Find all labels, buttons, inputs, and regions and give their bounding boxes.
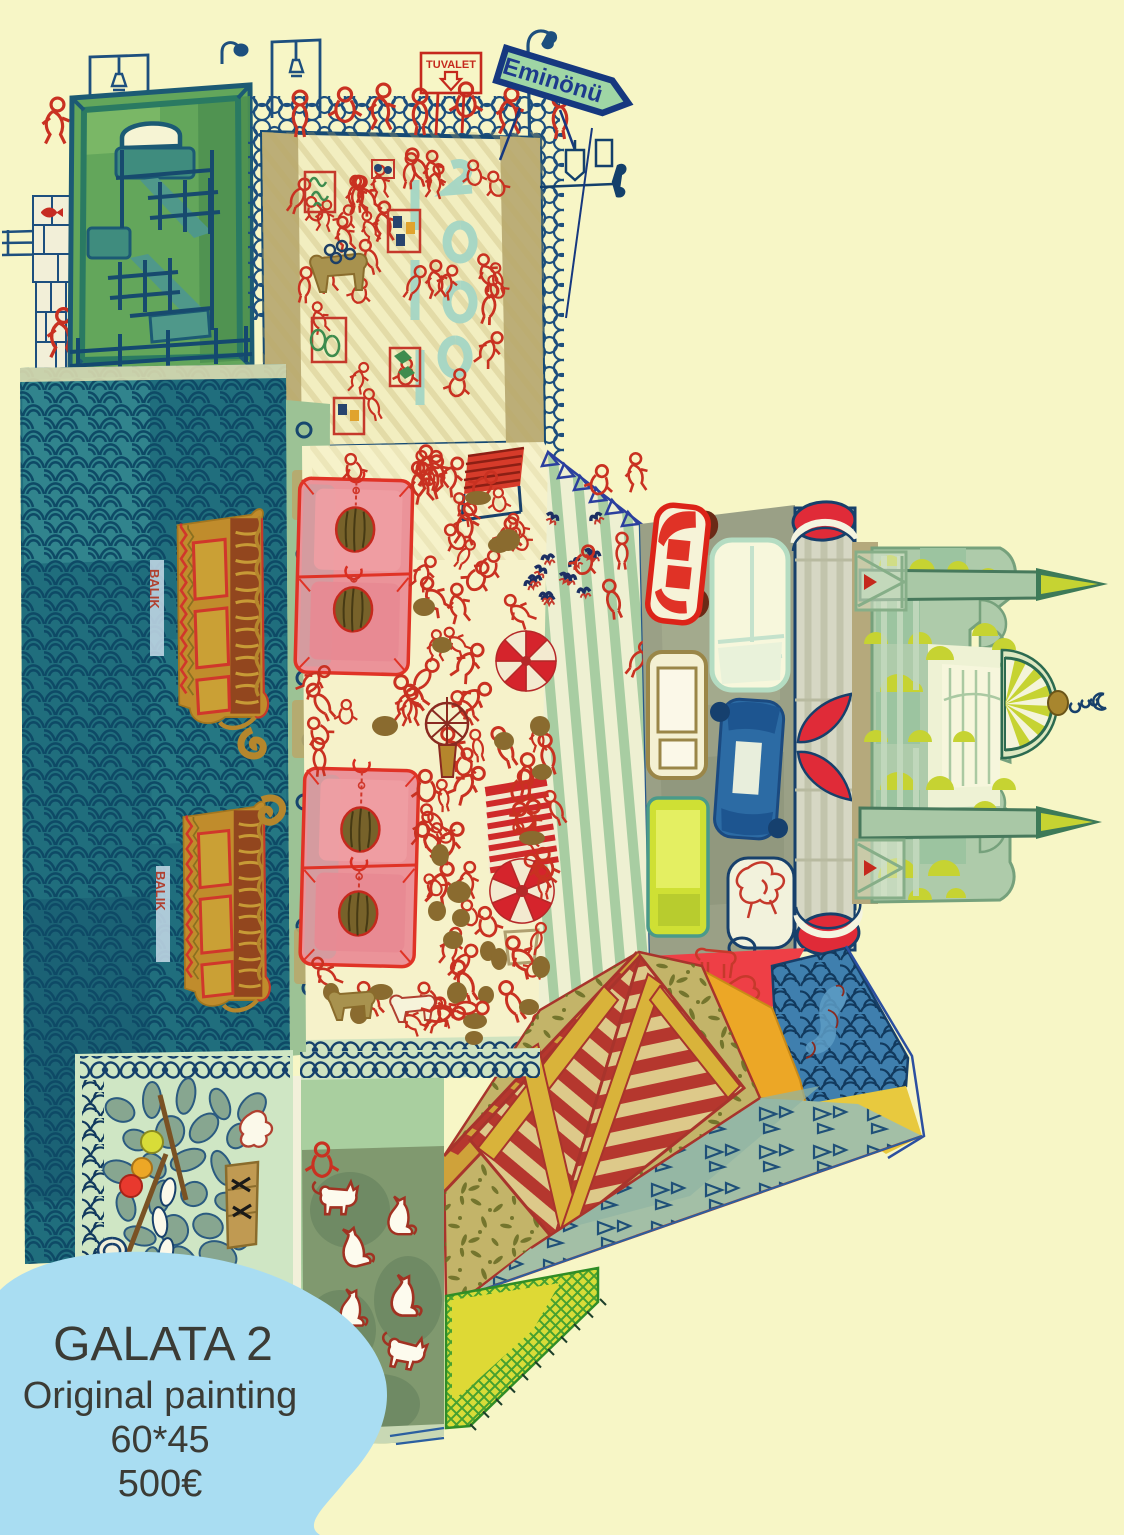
svg-text:BALIK: BALIK: [153, 871, 168, 911]
svg-text:60*45: 60*45: [110, 1419, 209, 1461]
svg-text:BALIK: BALIK: [147, 569, 162, 609]
svg-text:GALATA 2: GALATA 2: [53, 1318, 273, 1371]
svg-text:Original painting: Original painting: [23, 1375, 298, 1417]
svg-text:TUVALET: TUVALET: [426, 59, 476, 71]
svg-text:500€: 500€: [118, 1463, 203, 1505]
